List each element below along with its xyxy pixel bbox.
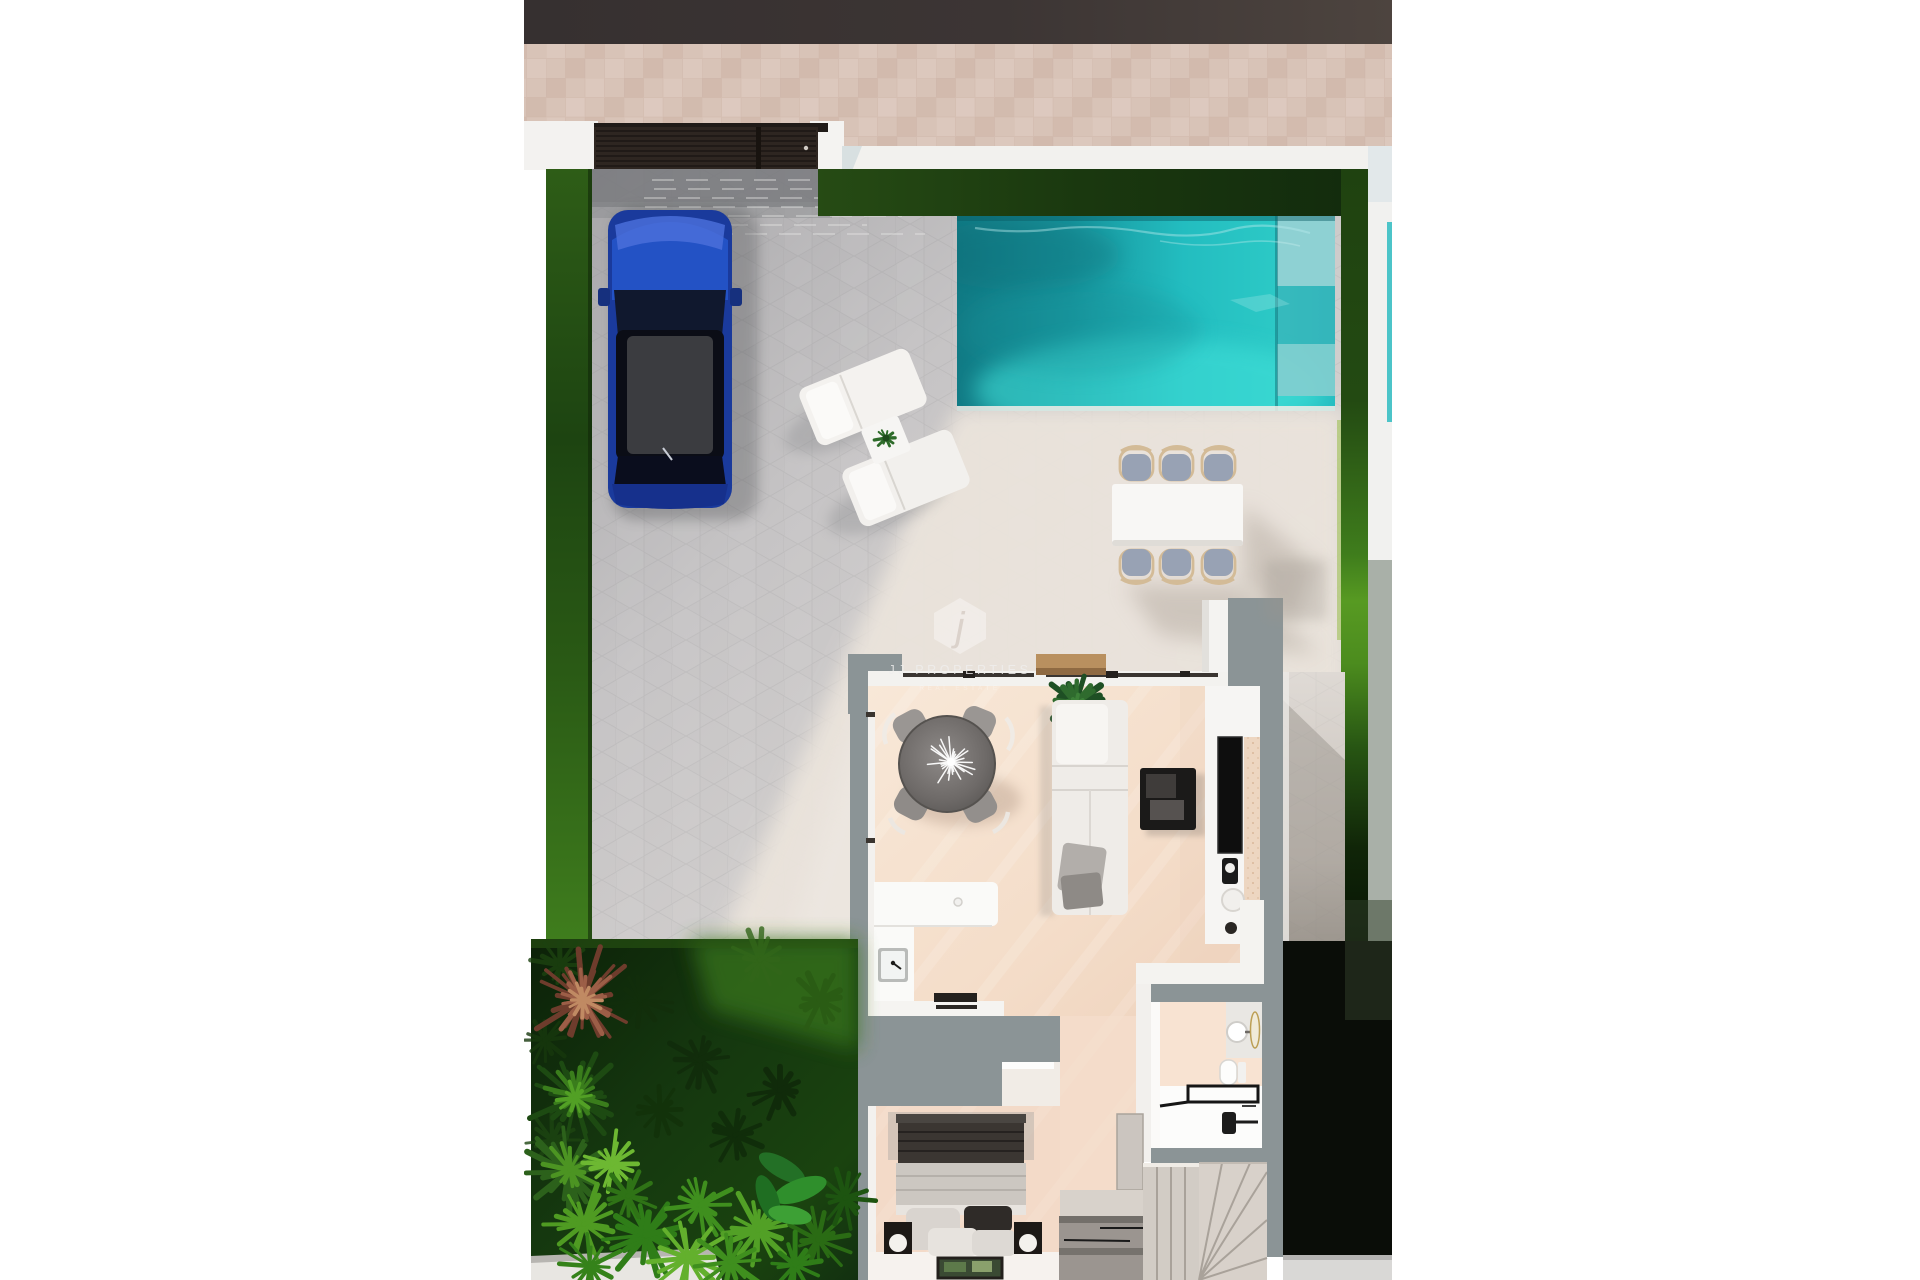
svg-text:JJ PROPERTIES: JJ PROPERTIES [888, 663, 1031, 677]
svg-text:REAL ESTATE: REAL ESTATE [919, 685, 1000, 692]
